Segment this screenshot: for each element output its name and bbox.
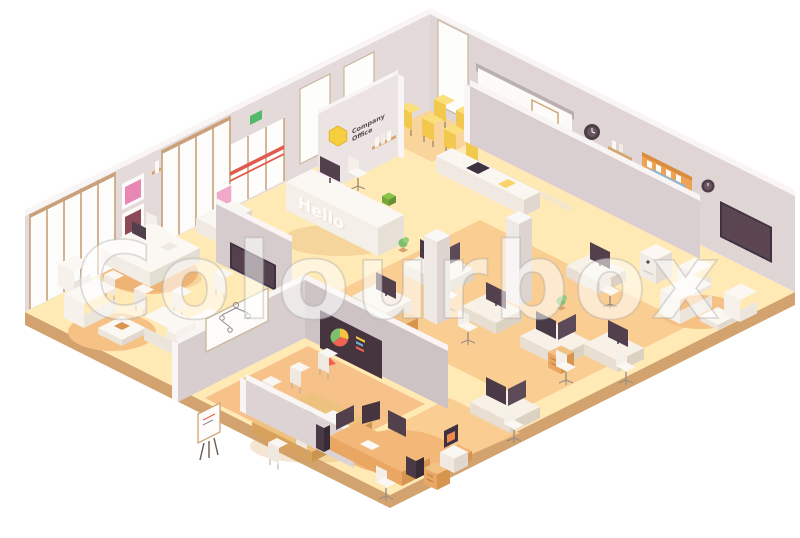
office-scene: Company Office Hello Hello	[0, 0, 800, 538]
wall-clock-icon	[584, 124, 600, 140]
speaker	[316, 424, 330, 452]
isometric-office-illustration: Company Office Hello Hello	[0, 0, 800, 538]
watermark-text: Colourbox	[75, 220, 725, 343]
wall-clock-icon	[702, 180, 715, 193]
hexagon-logo-icon	[329, 126, 346, 146]
